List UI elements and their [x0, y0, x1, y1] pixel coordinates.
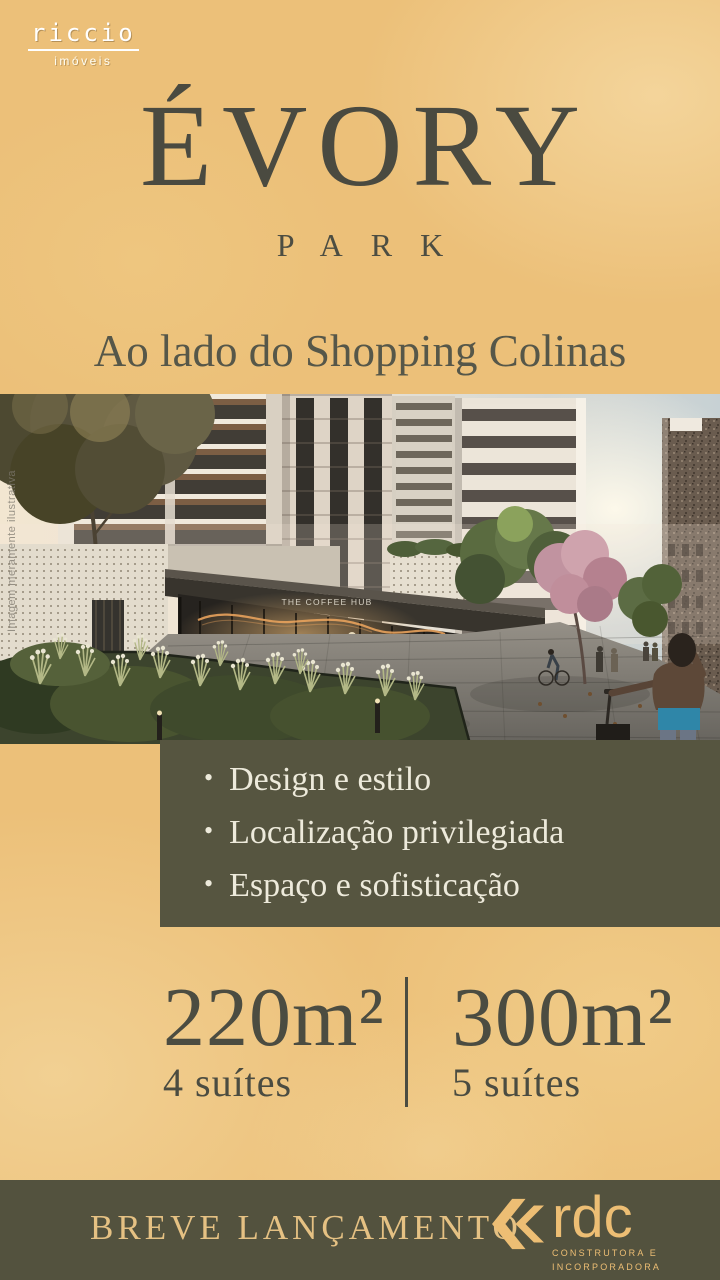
builder-text: rdc CONSTRUTORA E INCORPORADORA — [552, 1190, 661, 1274]
location-subtitle: Ao lado do Shopping Colinas — [0, 326, 720, 376]
feature-item: Espaço e sofisticação — [204, 860, 564, 913]
spec-suites: 5 suítes — [452, 1061, 674, 1105]
spec-area: 300m² — [452, 975, 674, 1061]
builder-logo: rdc CONSTRUTORA E INCORPORADORA — [492, 1190, 661, 1274]
brand-logo: riccio imóveis — [28, 20, 139, 68]
spec-unit-300: 300m² 5 suítes — [452, 975, 674, 1105]
features-panel: Design e estilo Localização privilegiada… — [160, 740, 720, 927]
builder-chevrons-icon — [492, 1196, 544, 1252]
property-rendering: THE COFFEE HUB — [0, 394, 720, 744]
feature-item: Localização privilegiada — [204, 807, 564, 860]
builder-tagline-line1: CONSTRUTORA E — [552, 1247, 661, 1260]
flyer-poster: riccio imóveis ÉVORY PARK Ao lado do Sho… — [0, 0, 720, 1280]
project-subtitle: PARK — [0, 228, 720, 262]
footer-bar: BREVE LANÇAMENTO rdc CONSTRUTORA E INCOR… — [0, 1180, 720, 1280]
brand-name: riccio — [28, 20, 139, 51]
builder-tagline-line2: INCORPORADORA — [552, 1261, 661, 1274]
builder-name: rdc — [552, 1190, 661, 1246]
photo-watermark: Imagem meramente ilustrativa — [6, 470, 18, 632]
brand-tagline: imóveis — [28, 54, 139, 68]
specs-divider — [405, 977, 408, 1107]
spec-unit-220: 220m² 4 suítes — [163, 975, 385, 1105]
spec-suites: 4 suítes — [163, 1061, 385, 1105]
project-title: ÉVORY — [10, 86, 720, 206]
launch-announcement: BREVE LANÇAMENTO — [90, 1209, 522, 1247]
feature-item: Design e estilo — [204, 754, 564, 807]
features-list: Design e estilo Localização privilegiada… — [160, 754, 564, 913]
cafe-sign-text: THE COFFEE HUB — [282, 597, 373, 607]
unit-specs: 220m² 4 suítes 300m² 5 suítes — [0, 975, 720, 1115]
title-block: ÉVORY PARK — [0, 86, 720, 262]
property-rendering-illustration: THE COFFEE HUB — [0, 394, 720, 744]
spec-area: 220m² — [163, 975, 385, 1061]
